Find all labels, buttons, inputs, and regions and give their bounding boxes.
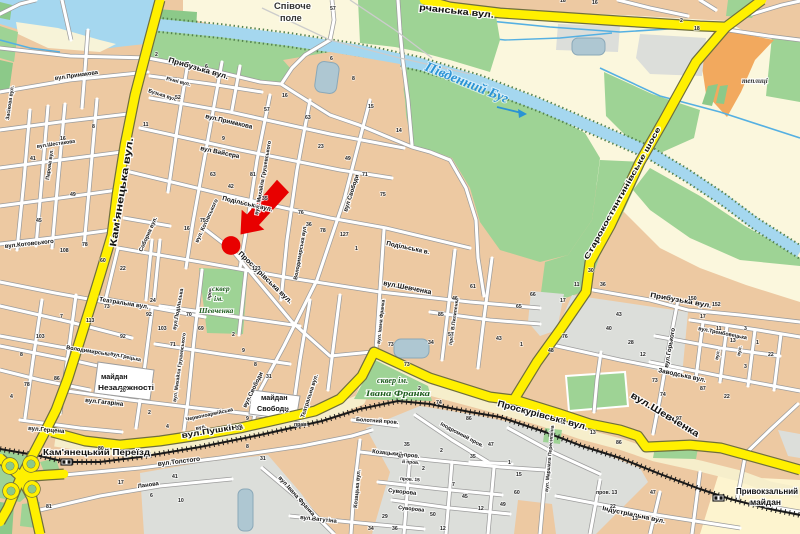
svg-text:майдан: майдан (750, 498, 781, 507)
svg-text:47: 47 (398, 454, 404, 460)
svg-text:45: 45 (36, 218, 42, 224)
svg-text:22: 22 (120, 266, 126, 272)
svg-text:18: 18 (560, 0, 566, 4)
svg-text:31: 31 (266, 374, 272, 380)
svg-text:50: 50 (430, 512, 436, 518)
svg-text:14: 14 (396, 128, 402, 134)
svg-text:73: 73 (652, 378, 658, 384)
svg-text:9: 9 (242, 348, 245, 354)
svg-text:2: 2 (680, 18, 683, 24)
svg-text:13: 13 (632, 516, 638, 522)
svg-text:майдан: майдан (261, 393, 288, 402)
svg-text:11: 11 (143, 122, 149, 128)
svg-text:22: 22 (768, 352, 774, 358)
svg-text:поле: поле (280, 13, 302, 23)
svg-text:2: 2 (286, 408, 289, 414)
svg-text:9: 9 (246, 416, 249, 422)
svg-text:15: 15 (368, 104, 374, 110)
svg-text:92: 92 (120, 334, 126, 340)
svg-text:23: 23 (318, 144, 324, 150)
svg-text:49: 49 (500, 502, 506, 508)
svg-text:35: 35 (470, 454, 476, 460)
svg-text:73: 73 (404, 362, 410, 368)
svg-text:сквер: сквер (212, 284, 230, 293)
svg-text:78: 78 (82, 242, 88, 248)
svg-text:74: 74 (560, 418, 566, 424)
svg-text:63: 63 (305, 115, 311, 121)
svg-text:103: 103 (36, 334, 45, 340)
svg-text:81: 81 (46, 504, 52, 510)
svg-text:16: 16 (592, 0, 598, 6)
svg-text:3: 3 (744, 364, 747, 370)
svg-text:86: 86 (54, 376, 60, 382)
svg-text:сквер ім.: сквер ім. (377, 376, 408, 385)
svg-text:108: 108 (60, 248, 69, 254)
svg-text:2: 2 (418, 386, 421, 392)
svg-text:Шевченка: Шевченка (198, 306, 234, 315)
svg-text:1: 1 (756, 340, 759, 346)
svg-text:36: 36 (306, 222, 312, 228)
svg-text:2: 2 (155, 52, 158, 58)
svg-text:3: 3 (744, 326, 747, 332)
svg-text:76: 76 (562, 334, 568, 340)
svg-text:127: 127 (340, 232, 349, 238)
svg-text:майдан: майдан (101, 372, 128, 381)
svg-text:34: 34 (428, 340, 434, 346)
svg-text:75: 75 (380, 192, 386, 198)
svg-text:40: 40 (606, 326, 612, 332)
svg-text:103: 103 (158, 326, 167, 332)
svg-text:42: 42 (228, 184, 234, 190)
svg-text:36: 36 (392, 526, 398, 532)
svg-text:8: 8 (20, 352, 23, 358)
svg-text:28: 28 (628, 340, 634, 346)
svg-text:60: 60 (100, 258, 106, 264)
svg-text:2: 2 (232, 332, 235, 338)
svg-text:7: 7 (452, 482, 455, 488)
svg-text:Кам'янецький Переїзд: Кам'янецький Переїзд (43, 447, 151, 457)
svg-text:74: 74 (436, 400, 442, 406)
svg-text:49: 49 (70, 192, 76, 198)
svg-text:71: 71 (170, 342, 176, 348)
svg-text:11: 11 (574, 282, 580, 288)
svg-text:113: 113 (86, 318, 94, 324)
svg-text:15: 15 (516, 472, 522, 478)
svg-text:Співоче: Співоче (274, 1, 311, 11)
svg-text:86: 86 (616, 440, 622, 446)
svg-text:48: 48 (548, 348, 554, 354)
svg-text:60: 60 (514, 490, 520, 496)
svg-text:8: 8 (246, 444, 249, 450)
svg-text:65: 65 (516, 304, 522, 310)
svg-text:16: 16 (282, 93, 288, 99)
svg-text:74: 74 (660, 392, 666, 398)
svg-text:92: 92 (146, 312, 152, 318)
svg-text:57: 57 (264, 107, 270, 113)
svg-text:41: 41 (172, 474, 178, 480)
svg-text:2: 2 (422, 466, 425, 472)
svg-text:11: 11 (716, 326, 722, 332)
svg-text:80: 80 (98, 446, 104, 452)
svg-text:47: 47 (488, 442, 494, 448)
svg-text:73: 73 (388, 342, 394, 348)
svg-text:31: 31 (236, 426, 242, 432)
svg-text:16: 16 (60, 136, 66, 142)
svg-text:20: 20 (120, 388, 126, 394)
svg-text:45: 45 (462, 494, 468, 500)
svg-text:85: 85 (438, 312, 444, 318)
svg-text:31: 31 (260, 456, 266, 462)
svg-text:152: 152 (712, 302, 721, 308)
svg-text:12: 12 (440, 526, 446, 532)
svg-text:9: 9 (222, 136, 225, 142)
svg-text:49: 49 (345, 156, 351, 162)
svg-text:24: 24 (150, 298, 156, 304)
svg-text:12: 12 (640, 352, 646, 358)
svg-text:76: 76 (298, 210, 304, 216)
svg-text:8: 8 (92, 124, 95, 130)
svg-text:41: 41 (30, 156, 36, 162)
svg-text:17: 17 (118, 480, 124, 486)
svg-text:ім.: ім. (214, 294, 223, 303)
svg-text:36: 36 (600, 282, 606, 288)
svg-text:87: 87 (700, 386, 706, 392)
svg-text:123: 123 (252, 266, 261, 272)
svg-text:10: 10 (178, 498, 184, 504)
svg-text:2: 2 (148, 410, 151, 416)
svg-text:30: 30 (588, 268, 594, 274)
svg-text:2: 2 (440, 448, 443, 454)
svg-text:46: 46 (452, 296, 458, 302)
svg-text:35: 35 (404, 442, 410, 448)
svg-text:29: 29 (382, 514, 388, 520)
svg-text:66: 66 (530, 292, 536, 298)
svg-text:75: 75 (200, 218, 206, 224)
svg-text:прав.: прав. (294, 422, 308, 428)
svg-text:1: 1 (508, 460, 511, 466)
svg-text:150: 150 (688, 296, 697, 302)
svg-text:Незалежності: Незалежності (98, 383, 154, 392)
svg-text:57: 57 (330, 6, 336, 12)
svg-text:57: 57 (448, 332, 454, 338)
svg-text:6: 6 (330, 56, 333, 62)
svg-text:13: 13 (730, 338, 736, 344)
svg-text:78: 78 (24, 382, 30, 388)
svg-text:43: 43 (616, 312, 622, 318)
svg-text:43: 43 (496, 336, 502, 342)
svg-text:35: 35 (262, 196, 268, 202)
svg-text:теплиці: теплиці (742, 77, 768, 85)
svg-text:70: 70 (186, 312, 192, 318)
svg-text:7: 7 (60, 314, 63, 320)
svg-text:97: 97 (676, 416, 682, 422)
svg-text:16: 16 (184, 226, 190, 232)
svg-text:78: 78 (320, 228, 326, 234)
svg-text:Привокзальний: Привокзальний (736, 487, 798, 496)
svg-text:63: 63 (210, 172, 216, 178)
svg-text:47: 47 (650, 490, 656, 496)
svg-text:34: 34 (368, 526, 374, 532)
svg-text:4: 4 (10, 394, 13, 400)
svg-text:71: 71 (362, 172, 368, 178)
svg-text:1: 1 (355, 246, 358, 252)
svg-text:81: 81 (250, 172, 256, 178)
svg-text:52: 52 (175, 95, 181, 101)
svg-text:22: 22 (724, 394, 730, 400)
svg-text:пров. 13: пров. 13 (596, 490, 617, 496)
svg-text:61: 61 (470, 284, 476, 290)
svg-text:69: 69 (198, 326, 204, 332)
svg-text:13: 13 (590, 430, 596, 436)
svg-text:18: 18 (694, 26, 700, 32)
svg-text:17: 17 (560, 298, 566, 304)
svg-text:12: 12 (478, 506, 484, 512)
svg-text:86: 86 (466, 416, 472, 422)
svg-text:1: 1 (520, 342, 523, 348)
svg-text:4: 4 (166, 424, 169, 430)
svg-text:73: 73 (104, 304, 110, 310)
svg-text:6: 6 (150, 493, 153, 499)
svg-text:6: 6 (205, 64, 208, 70)
svg-text:22: 22 (610, 504, 616, 510)
svg-text:8: 8 (254, 362, 257, 368)
svg-text:17: 17 (700, 314, 706, 320)
svg-text:8: 8 (352, 76, 355, 82)
svg-text:Свободи: Свободи (257, 404, 289, 413)
